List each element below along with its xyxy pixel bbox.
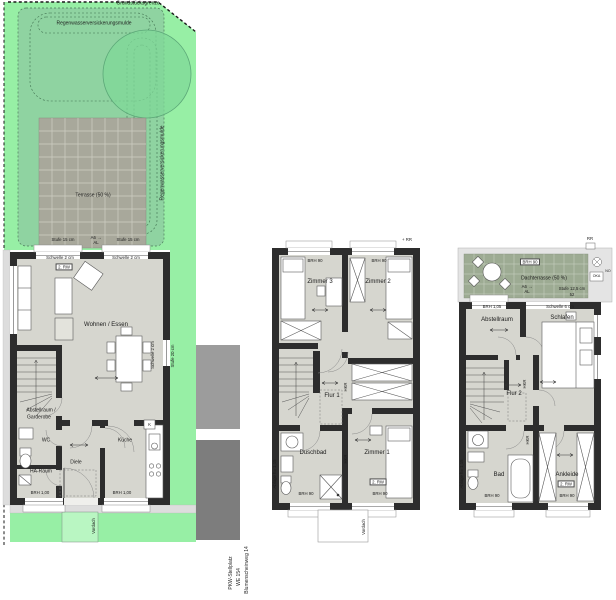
label-room3: Zimmer 3: [307, 279, 332, 285]
label-canopy-og: Vordach: [362, 519, 367, 535]
label-hallway: Diele: [70, 460, 81, 465]
label-ha-room: HA-Raum: [30, 469, 52, 474]
label-hall1: Flur 1: [324, 393, 339, 399]
label-brh90-dg-br: BRH 90: [559, 494, 574, 499]
parking-space: [196, 440, 240, 540]
label-step-125: Stufe 12,5 cm: [559, 287, 586, 292]
label-rw-og: 2. RW: [370, 478, 387, 485]
label-rr-dg: RR: [587, 237, 593, 242]
label-rw-dg: 2. RW: [558, 480, 575, 487]
label-rr-plus: + RR: [402, 238, 412, 243]
paved-area: [196, 345, 240, 429]
label-threshold-left: Schwelle 2 cm: [46, 256, 74, 261]
label-bedroom: Schlafen: [550, 315, 573, 321]
label-step-right: Stufe 15 cm: [117, 238, 140, 243]
label-brh105: BRH 1,05: [483, 305, 502, 310]
label-al-dg: AL: [524, 290, 529, 295]
label-wc: WC: [42, 438, 50, 443]
label-shelf-og: Ablage h= 1,15: [273, 459, 278, 488]
label-swale: Regenwasserversickerungsmulde: [56, 21, 131, 26]
label-storage-dg: Abstellraum: [481, 317, 513, 323]
floorplan-sheet: Grundstücksgrenze Regenwasserversickerun…: [0, 0, 616, 600]
label-no: NO: [605, 270, 610, 274]
label-shelf-dg: Ablage h= 1,15: [460, 459, 465, 488]
label-property-line: Grundstücksgrenze: [116, 1, 159, 6]
label-step-left: Stufe 15 cm: [52, 238, 75, 243]
label-oka: OKA: [593, 275, 601, 279]
label-brh90-og-bl: BRH 90: [298, 492, 313, 497]
label-drain-al: AL: [93, 241, 98, 246]
label-threshold-right: Schwelle 2 cm: [112, 256, 140, 261]
label-brh90-og-tr: BRH 90: [371, 259, 386, 264]
footer-parking: PKW-Stellplatz: [228, 556, 234, 589]
label-fridge: K: [148, 422, 151, 427]
footer-address: Blumenscheinweg 14: [244, 546, 250, 594]
label-rw-gf: 2. RW: [56, 263, 73, 270]
label-swale-vertical: Regenwasserversickerungsmulde: [160, 125, 165, 200]
label-brh100-right: BRH 1,00: [113, 491, 132, 496]
label-terrace: Terrasse (50 %): [75, 193, 110, 198]
label-brh90-dg-bl: BRH 90: [484, 494, 499, 499]
label-threshold-dg: Schwelle 6 cm: [546, 305, 574, 310]
label-hkr-og-1: HKR: [344, 382, 349, 391]
tree: [103, 30, 191, 118]
footer-unit: WE 154: [236, 568, 242, 586]
label-threshold-garden-door: Schwelle 2 cm: [151, 341, 156, 369]
label-hkr-dg-2: HKR: [526, 435, 531, 444]
label-brh90-og-tl: BRH 90: [307, 259, 322, 264]
label-roof-terrace: Dachterrasse (50 %): [521, 276, 567, 281]
label-living-dining: Wohnen / Essen: [84, 322, 128, 328]
label-storage-2: Garderobe: [27, 415, 51, 420]
label-room2: Zimmer 2: [365, 279, 390, 285]
label-hall2: Flur 2: [506, 391, 521, 397]
label-brh90-terrace: BRH 90: [520, 258, 540, 265]
label-storage-1: Abstellraum /: [26, 408, 55, 413]
label-room1: Zimmer 1: [364, 450, 389, 456]
floorplan-drawing: [0, 0, 616, 600]
label-step-20: Stufe 20 cm: [171, 345, 176, 368]
attic-floor-plan: [458, 243, 612, 517]
gravel-strip-left: [3, 250, 10, 505]
label-brh100-left: BRH 1,00: [31, 491, 50, 496]
label-hkr-dg-1: HKR: [523, 379, 528, 388]
label-brh90-og-br: BRH 90: [372, 492, 387, 497]
label-hkr-og-2: HKR: [344, 454, 349, 463]
label-kitchen: Küche: [118, 438, 132, 443]
label-walkway-canopy: Vordach: [92, 518, 97, 534]
label-bathroom: Bad: [494, 472, 505, 478]
label-dim-52: 52: [570, 293, 575, 298]
label-shower-bath: Duschbad: [299, 450, 326, 456]
terrace: [39, 118, 146, 248]
label-dressing: Ankleide: [555, 472, 578, 478]
